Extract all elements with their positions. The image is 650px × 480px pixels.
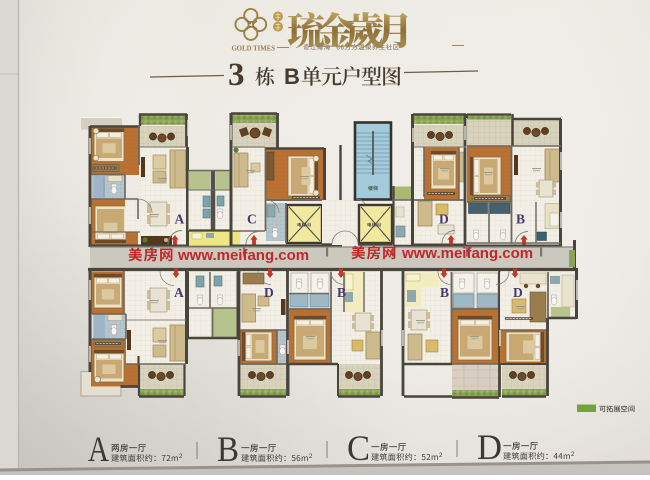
svg-text:GOLD TIMES: GOLD TIMES <box>232 46 276 53</box>
svg-text:C: C <box>247 212 257 227</box>
svg-text:A: A <box>175 212 185 227</box>
svg-text:C: C <box>347 428 370 468</box>
svg-text:B: B <box>217 429 239 469</box>
svg-text:A: A <box>174 285 184 300</box>
svg-text:A: A <box>88 429 109 469</box>
svg-text:B: B <box>284 64 300 89</box>
svg-text:www.meifang.com: www.meifang.com <box>177 247 309 264</box>
svg-text:B: B <box>440 285 449 300</box>
svg-text:D: D <box>513 285 523 300</box>
svg-text:B: B <box>516 212 525 227</box>
svg-text:3: 3 <box>228 57 245 93</box>
svg-text:D: D <box>439 212 449 227</box>
svg-text:D: D <box>264 285 274 300</box>
svg-text:B: B <box>337 285 346 300</box>
svg-text:www.meifang.com: www.meifang.com <box>401 245 533 262</box>
svg-text:D: D <box>477 427 502 467</box>
